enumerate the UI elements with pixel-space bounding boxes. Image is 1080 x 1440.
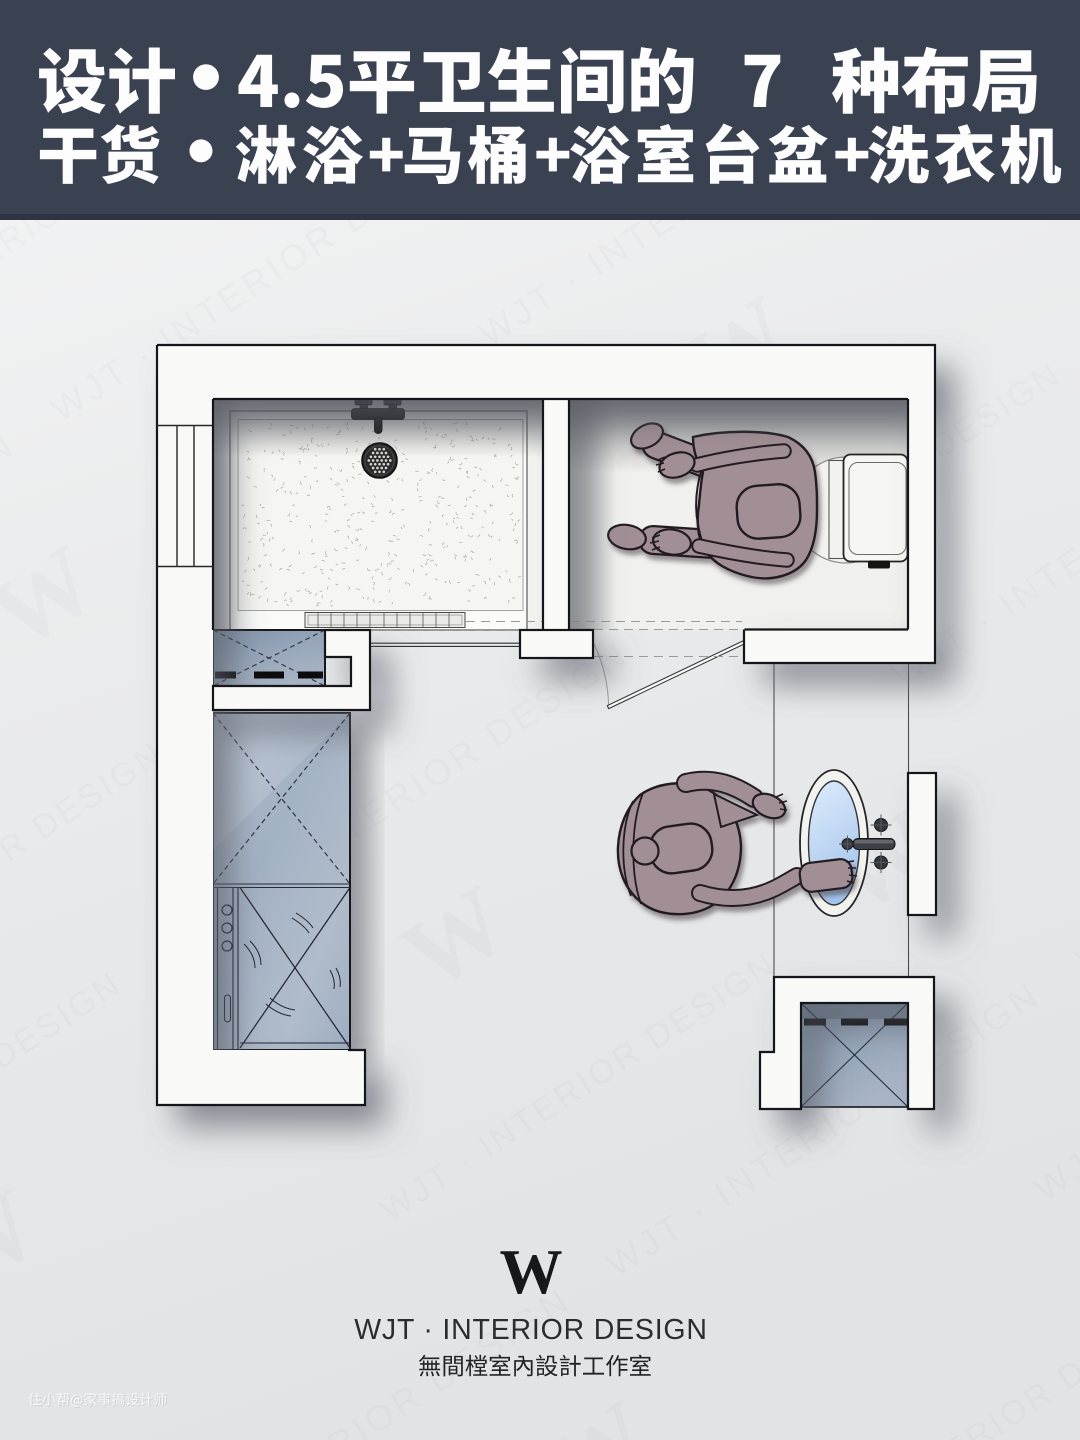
svg-text:WJT · INTERIOR DESIGN: WJT · INTERIOR DESIGN bbox=[354, 1314, 708, 1346]
svg-text:W: W bbox=[500, 1237, 563, 1307]
